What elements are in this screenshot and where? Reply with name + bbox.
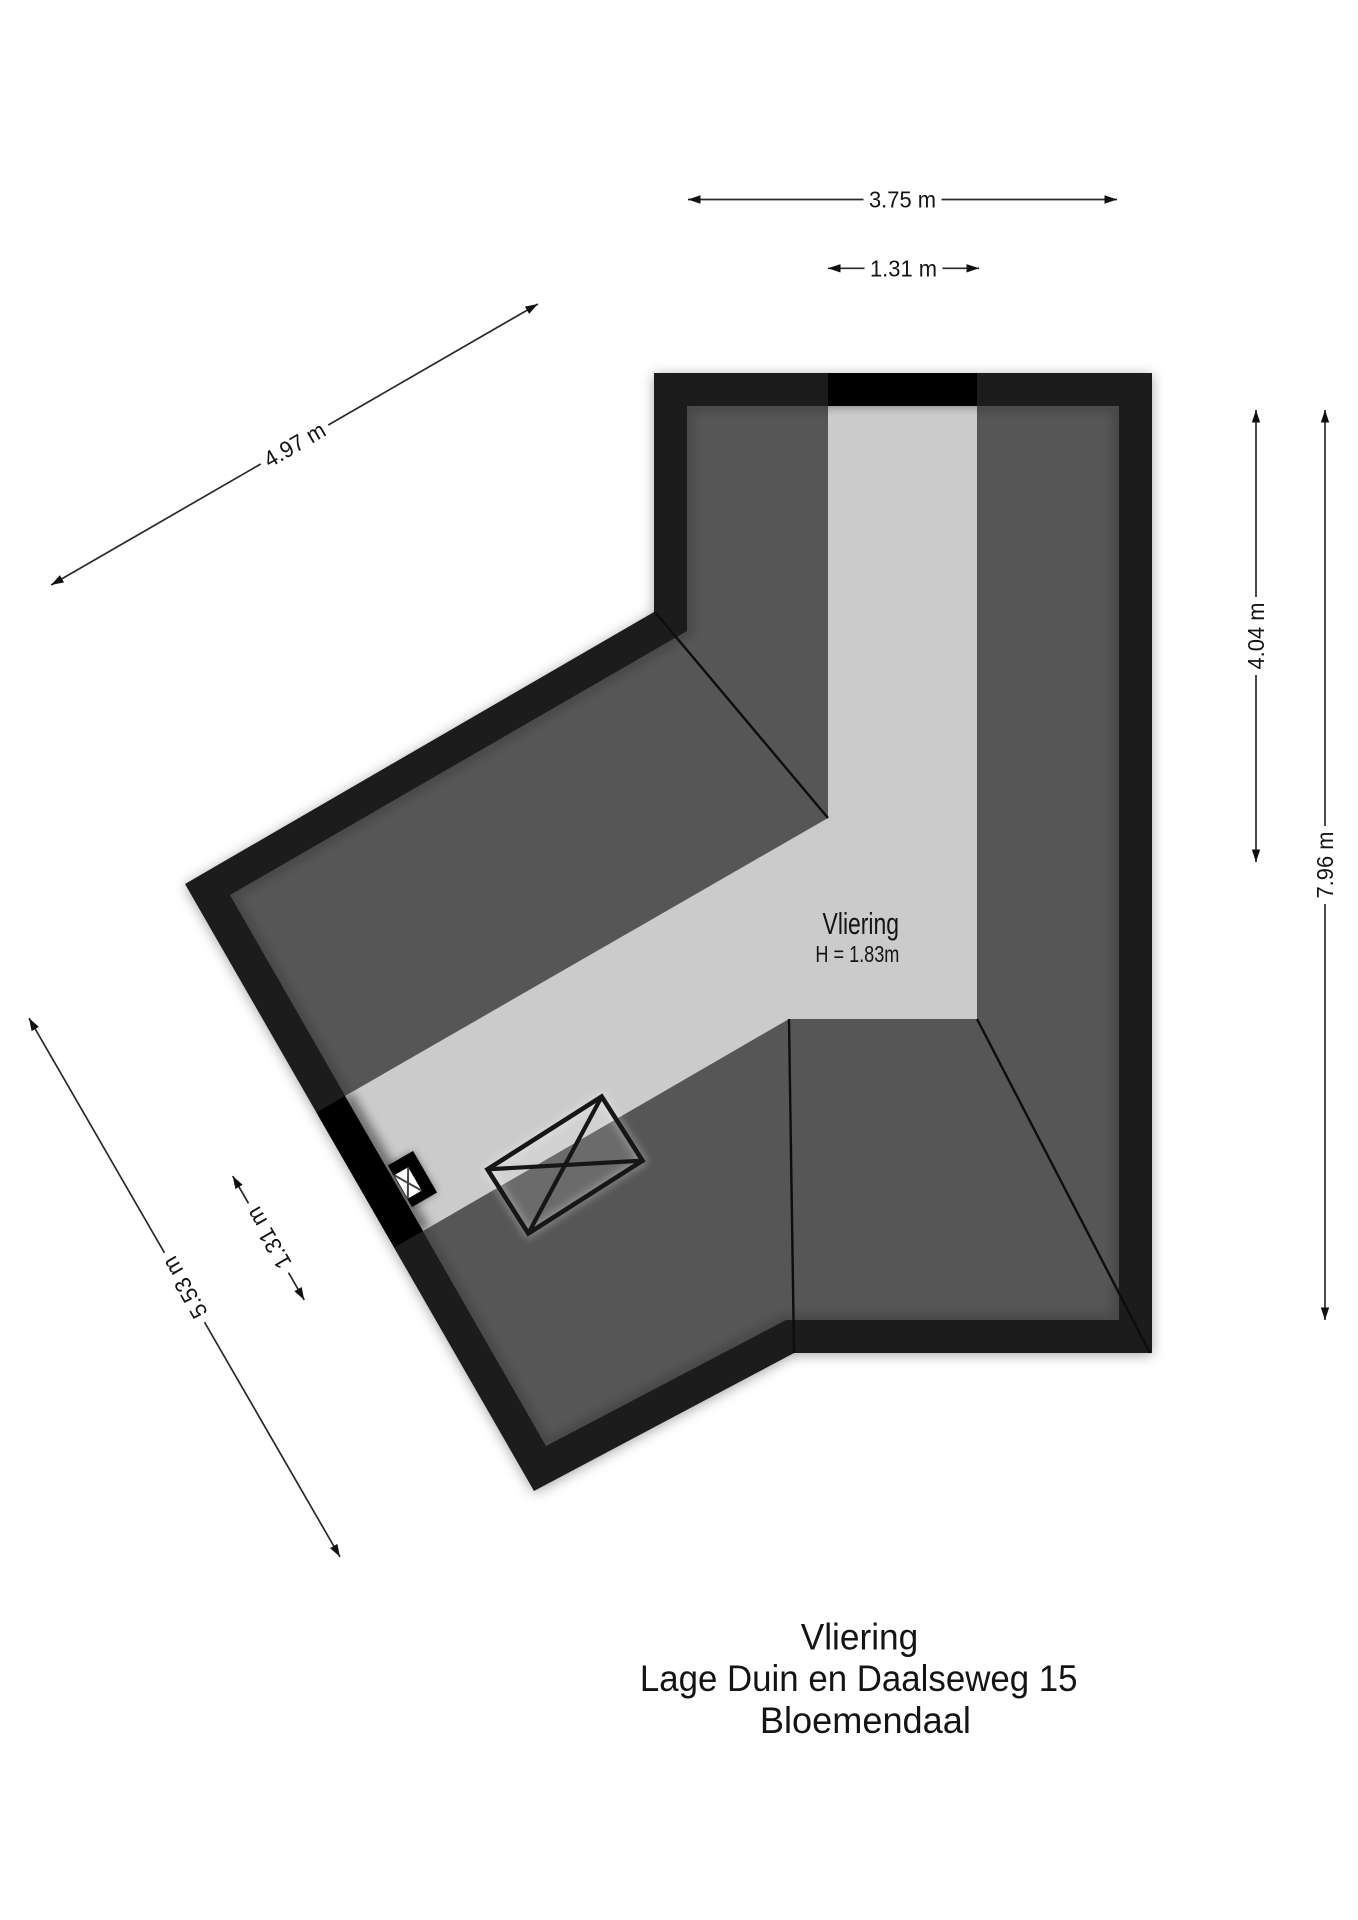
svg-text:4.97 m: 4.97 m — [259, 417, 330, 473]
svg-text:1.31 m: 1.31 m — [870, 255, 937, 281]
svg-text:7.96 m: 7.96 m — [1312, 832, 1338, 899]
svg-text:3.75 m: 3.75 m — [869, 187, 936, 213]
svg-text:H = 1.83m: H = 1.83m — [815, 941, 899, 967]
svg-text:Vliering: Vliering — [801, 1616, 919, 1657]
svg-text:1.31 m: 1.31 m — [241, 1202, 297, 1273]
svg-text:5.53 m: 5.53 m — [157, 1252, 213, 1323]
svg-text:4.04 m: 4.04 m — [1243, 603, 1269, 670]
svg-text:Vliering: Vliering — [823, 906, 900, 941]
svg-text:Bloemendaal: Bloemendaal — [760, 1700, 971, 1741]
svg-text:Lage Duin en Daalseweg 15: Lage Duin en Daalseweg 15 — [640, 1658, 1078, 1699]
